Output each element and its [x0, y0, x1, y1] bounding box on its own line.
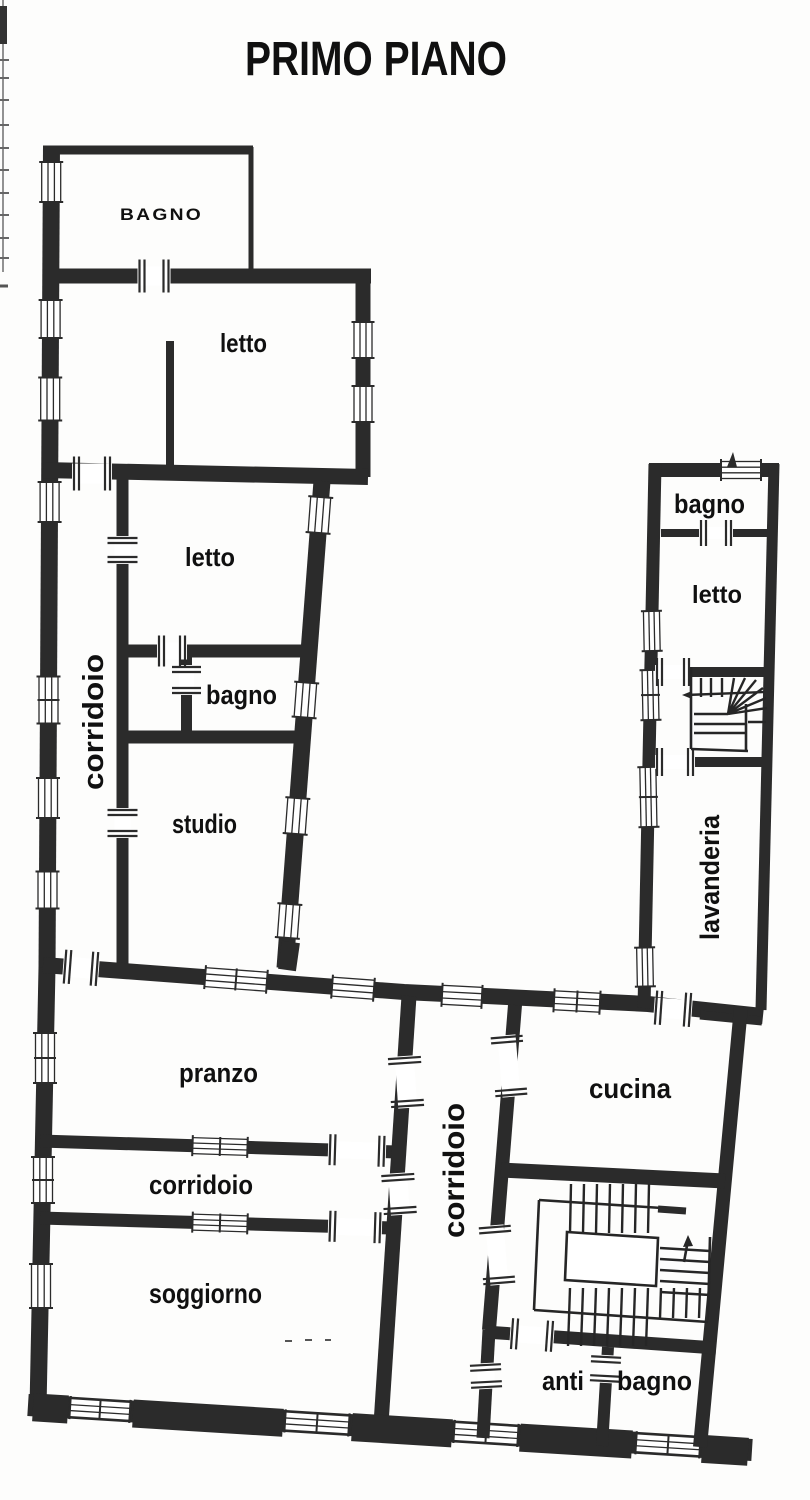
svg-text:letto: letto — [692, 581, 742, 609]
svg-text:letto: letto — [220, 328, 267, 358]
svg-text:bagno: bagno — [617, 1366, 692, 1396]
svg-text:letto: letto — [185, 542, 235, 572]
svg-text:corridoio: corridoio — [78, 654, 110, 790]
svg-text:studio: studio — [172, 809, 237, 839]
svg-text:PRIMO PIANO: PRIMO PIANO — [245, 33, 507, 86]
svg-text:bagno: bagno — [206, 680, 277, 710]
svg-text:corridoio: corridoio — [149, 1170, 253, 1200]
svg-text:corridoio: corridoio — [438, 1103, 471, 1238]
svg-text:pranzo: pranzo — [179, 1058, 258, 1088]
svg-text:bagno: bagno — [674, 489, 745, 519]
svg-text:soggiorno: soggiorno — [149, 1278, 262, 1309]
svg-text:cucina: cucina — [589, 1073, 671, 1104]
svg-text:lavanderia: lavanderia — [695, 814, 725, 940]
svg-text:BAGNO: BAGNO — [120, 205, 203, 224]
svg-text:anti: anti — [542, 1366, 584, 1396]
